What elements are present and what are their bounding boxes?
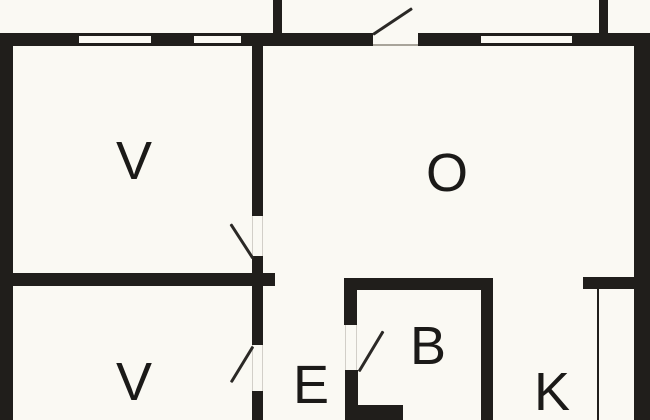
wall-b-right [481,278,493,420]
door-b-opening [345,325,357,370]
room-label-v1: V [116,134,152,188]
wall-e-v2-lower [252,391,263,420]
floor-plan: V O V E B K [0,0,650,420]
room-label-v2: V [116,355,152,409]
entrance-door-threshold [373,44,418,46]
room-label-b: B [410,319,446,373]
kitchen-partition-line [597,288,599,420]
wall-b-bottom [345,405,403,420]
wall-exterior-left [0,33,13,420]
wall-v1-o-upper [252,46,263,216]
door-v1-o-swing-line [229,223,254,259]
window-top-middle [193,35,242,44]
door-b-swing-line [358,330,385,372]
window-top-right [480,35,573,44]
wall-exterior-right [634,33,650,420]
wall-v1-v2-divider [13,273,275,286]
room-label-e: E [293,358,329,412]
door-v1-o-opening [252,216,263,256]
wall-porch-right [599,0,608,33]
wall-b-top [344,278,493,290]
wall-e-v2-upper [252,286,263,345]
wall-o-k [583,277,634,289]
door-e-v2-opening [252,345,263,391]
door-e-v2-swing-line [230,346,254,383]
window-top-left [78,35,152,44]
entrance-door-swing-line [372,7,413,36]
room-label-o: O [426,146,468,200]
wall-porch-left [273,0,282,33]
room-label-k: K [534,365,570,419]
wall-b-left-upper [344,278,357,325]
wall-b-left-lower [345,370,358,408]
